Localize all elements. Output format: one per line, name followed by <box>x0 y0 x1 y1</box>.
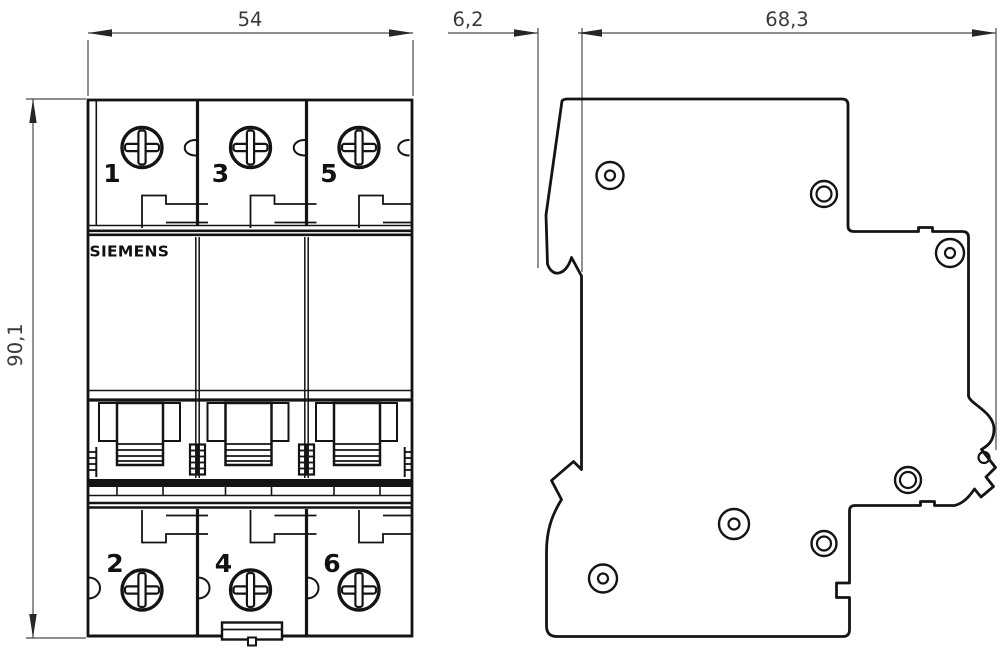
dim-label-side-body-depth: 68,3 <box>765 8 808 31</box>
front-view: SIEMENS <box>88 100 412 646</box>
din-release-tab <box>222 623 282 646</box>
dimension-side-front-depth: 6,2 <box>448 8 582 272</box>
arrowhead-right <box>972 29 996 36</box>
rivet-icon <box>936 239 964 267</box>
breaker-dimensional-drawing: 54 90,1 6,2 68,3 <box>0 0 1000 648</box>
siemens-logo: SIEMENS <box>90 243 170 261</box>
terminal-number-1: 1 <box>103 159 120 188</box>
terminal-number-6: 6 <box>323 549 340 578</box>
dim-label-side-front-depth: 6,2 <box>452 8 483 31</box>
bottom-terminal-cutouts <box>142 510 411 543</box>
technical-drawing-canvas: 54 90,1 6,2 68,3 <box>0 0 1000 648</box>
screw-terminal-6-icon <box>339 570 379 610</box>
dimension-front-width: 54 <box>88 8 413 96</box>
wire-entry-tabs <box>88 140 410 599</box>
screw-terminal-5-icon <box>339 128 379 168</box>
terminal-number-4: 4 <box>215 549 232 578</box>
interlock-clip-1 <box>190 445 205 475</box>
rivet-icon <box>895 467 921 493</box>
terminal-number-5: 5 <box>320 159 337 188</box>
screw-terminal-3-icon <box>231 128 271 168</box>
screw-terminal-2-icon <box>122 570 162 610</box>
arrowhead-right <box>389 29 413 36</box>
arrowhead-right <box>514 29 538 36</box>
front-body-outline <box>88 100 412 636</box>
dim-label-front-width: 54 <box>238 8 263 31</box>
rivet-icon <box>811 181 837 207</box>
arrowhead-down <box>29 614 36 638</box>
rivet-icon <box>597 162 624 189</box>
side-view <box>546 99 996 637</box>
terminal-number-3: 3 <box>212 159 229 188</box>
arrowhead-left <box>88 29 112 36</box>
screw-terminal-4-icon <box>231 570 271 610</box>
rivet-icon <box>719 509 749 539</box>
screw-terminal-1-icon <box>122 128 162 168</box>
terminal-number-2: 2 <box>106 549 123 578</box>
dim-label-front-height: 90,1 <box>4 323 27 366</box>
top-terminal-cutouts <box>142 196 411 229</box>
dimension-front-height: 90,1 <box>4 99 86 638</box>
rivet-icon <box>812 531 837 556</box>
arrowhead-up <box>29 99 36 123</box>
rivet-icon <box>589 565 617 593</box>
interlock-clip-2 <box>299 445 314 475</box>
